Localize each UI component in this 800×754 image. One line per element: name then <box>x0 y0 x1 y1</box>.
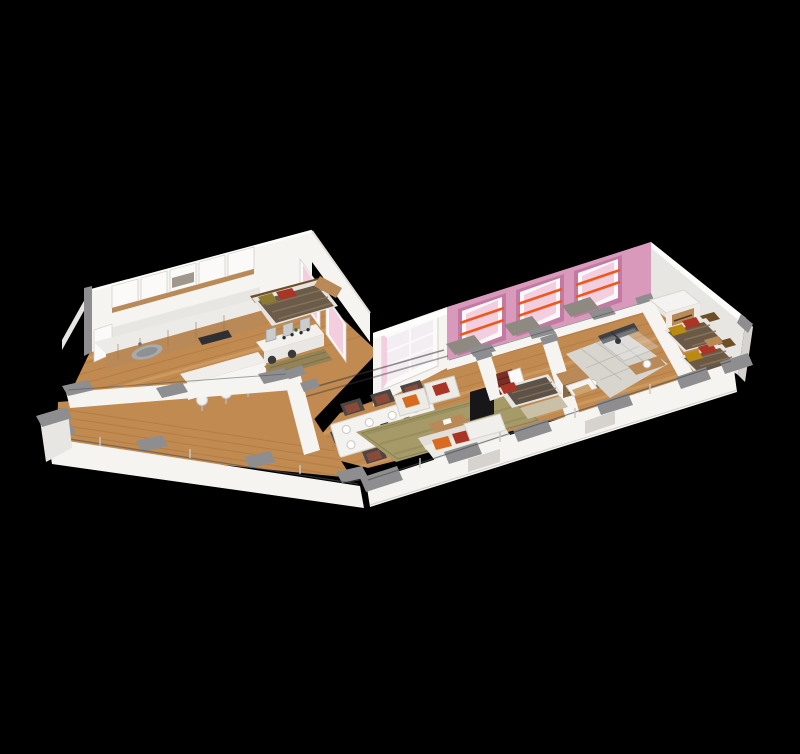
vanity-stool <box>288 350 296 358</box>
green-bottle <box>294 328 297 331</box>
vanity-basin <box>643 360 651 368</box>
shower-head <box>615 338 621 344</box>
floorplan-render <box>0 0 800 754</box>
floorplan-canvas <box>0 0 800 754</box>
faucet <box>138 342 142 346</box>
window-pink-reveal <box>382 334 387 390</box>
wall-end-cap <box>84 286 92 356</box>
